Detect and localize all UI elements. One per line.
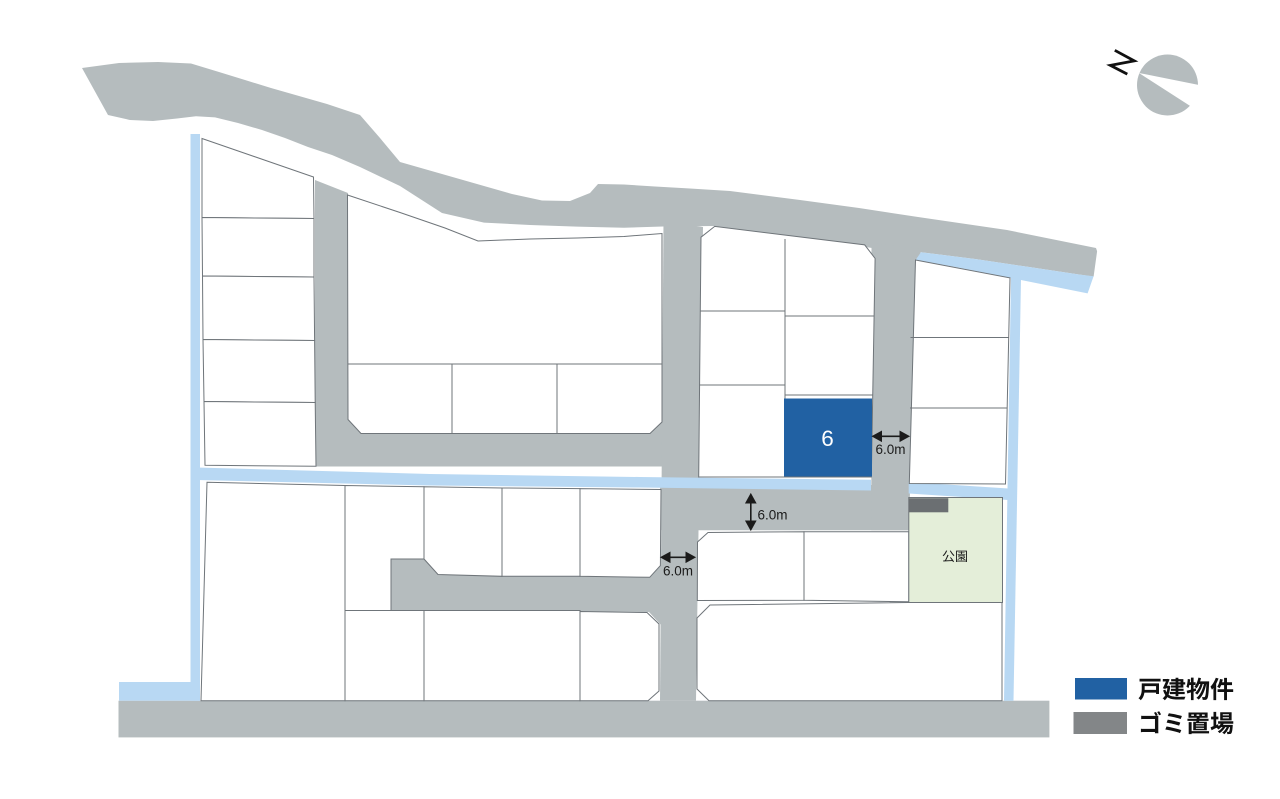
svg-text:6: 6 (821, 426, 834, 451)
svg-text:6.0m: 6.0m (663, 564, 693, 579)
svg-text:6.0m: 6.0m (758, 508, 788, 523)
svg-text:6.0m: 6.0m (875, 442, 905, 457)
